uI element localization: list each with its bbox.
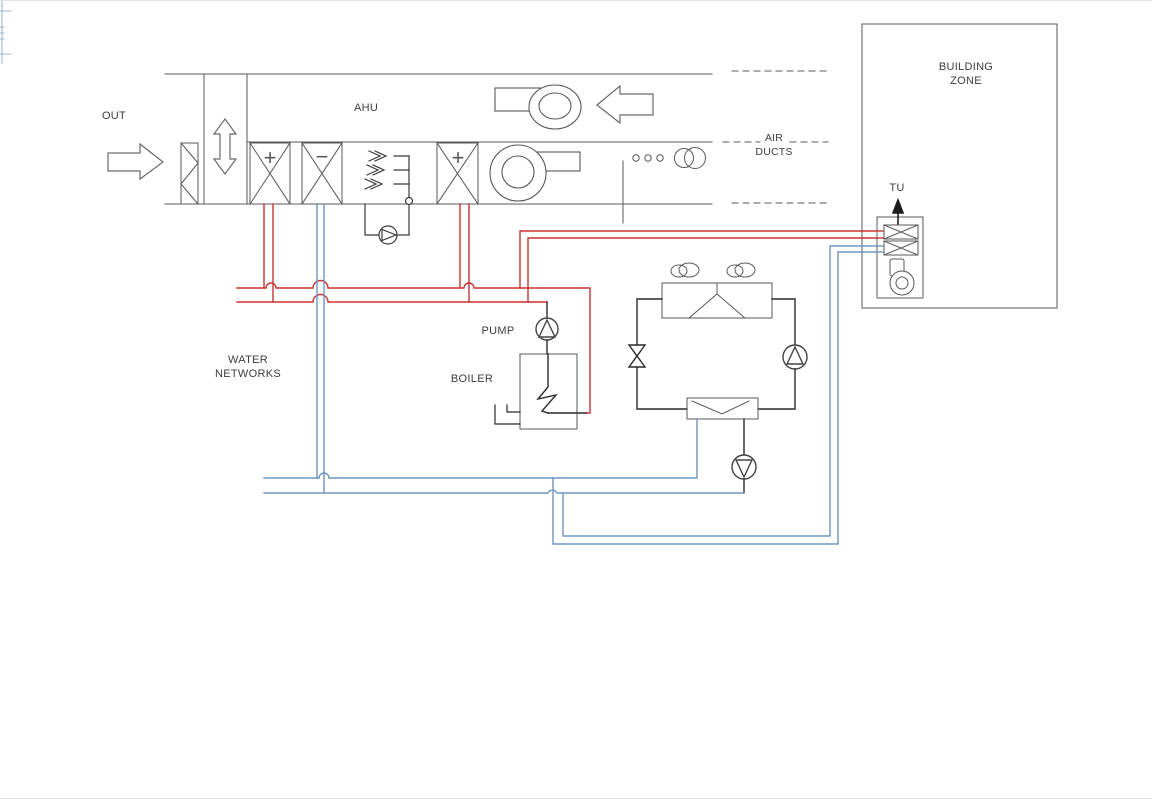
- silencer-icon: [675, 148, 706, 169]
- supply-fan-icon: [490, 145, 580, 201]
- tu-label: TU: [889, 182, 904, 194]
- boiler-pump-circuit: [536, 302, 558, 354]
- air-ducts-label-line2: DUCTS: [755, 146, 792, 158]
- return-air-arrow-icon: [597, 86, 653, 123]
- out-label: OUT: [102, 110, 126, 122]
- expansion-valve-icon: [629, 345, 645, 367]
- return-fan-icon: [495, 85, 581, 129]
- mixing-damper-arrow-icon: [214, 119, 236, 174]
- boiler-box: [495, 354, 586, 429]
- water-networks-label-line2: NETWORKS: [215, 368, 281, 380]
- duct-sensor-probe: [623, 155, 663, 223]
- schematic-page: + − +: [0, 0, 1152, 799]
- filter-icon: [181, 143, 198, 204]
- tu-heating-coil: [884, 225, 918, 239]
- page-edge-artifacts: [0, 1, 11, 63]
- humidifier-pump-icon: [379, 226, 397, 244]
- tu-cooling-coil: [884, 241, 918, 255]
- chilled-water-pump-icon: [732, 455, 756, 479]
- humidifier-nozzles-icon: [365, 151, 386, 189]
- humidifier: [365, 151, 413, 244]
- outside-air-arrow-icon: [108, 144, 163, 179]
- boiler-label: BOILER: [451, 373, 493, 385]
- condenser-fans-icon: [671, 263, 755, 277]
- building-zone-label-line2: ZONE: [950, 75, 982, 87]
- condenser: [662, 283, 772, 318]
- heating-coil: +: [250, 143, 290, 204]
- hot-water-pump-icon: [536, 318, 558, 340]
- chiller-circuit: [629, 263, 807, 493]
- air-ducts-label-line1: AIR: [765, 132, 783, 144]
- water-networks-label-line1: WATER: [228, 354, 268, 366]
- hot-water-pipes: [237, 204, 884, 413]
- terminal-unit: [877, 200, 923, 298]
- evaporator: [687, 398, 758, 419]
- compressor-icon: [783, 345, 807, 369]
- reheat-coil: +: [437, 143, 478, 204]
- boiler-inlet-pipe: [495, 405, 520, 424]
- chilled-water-pipes: [264, 204, 884, 544]
- reheat-coil-sign: +: [452, 145, 465, 170]
- pump-label: PUMP: [482, 325, 515, 337]
- cooling-coil-sign: −: [316, 144, 329, 169]
- ahu-label: AHU: [354, 102, 378, 114]
- building-zone-label-line1: BUILDING: [939, 61, 993, 73]
- heating-coil-sign: +: [264, 145, 277, 170]
- cooling-coil: −: [302, 143, 342, 204]
